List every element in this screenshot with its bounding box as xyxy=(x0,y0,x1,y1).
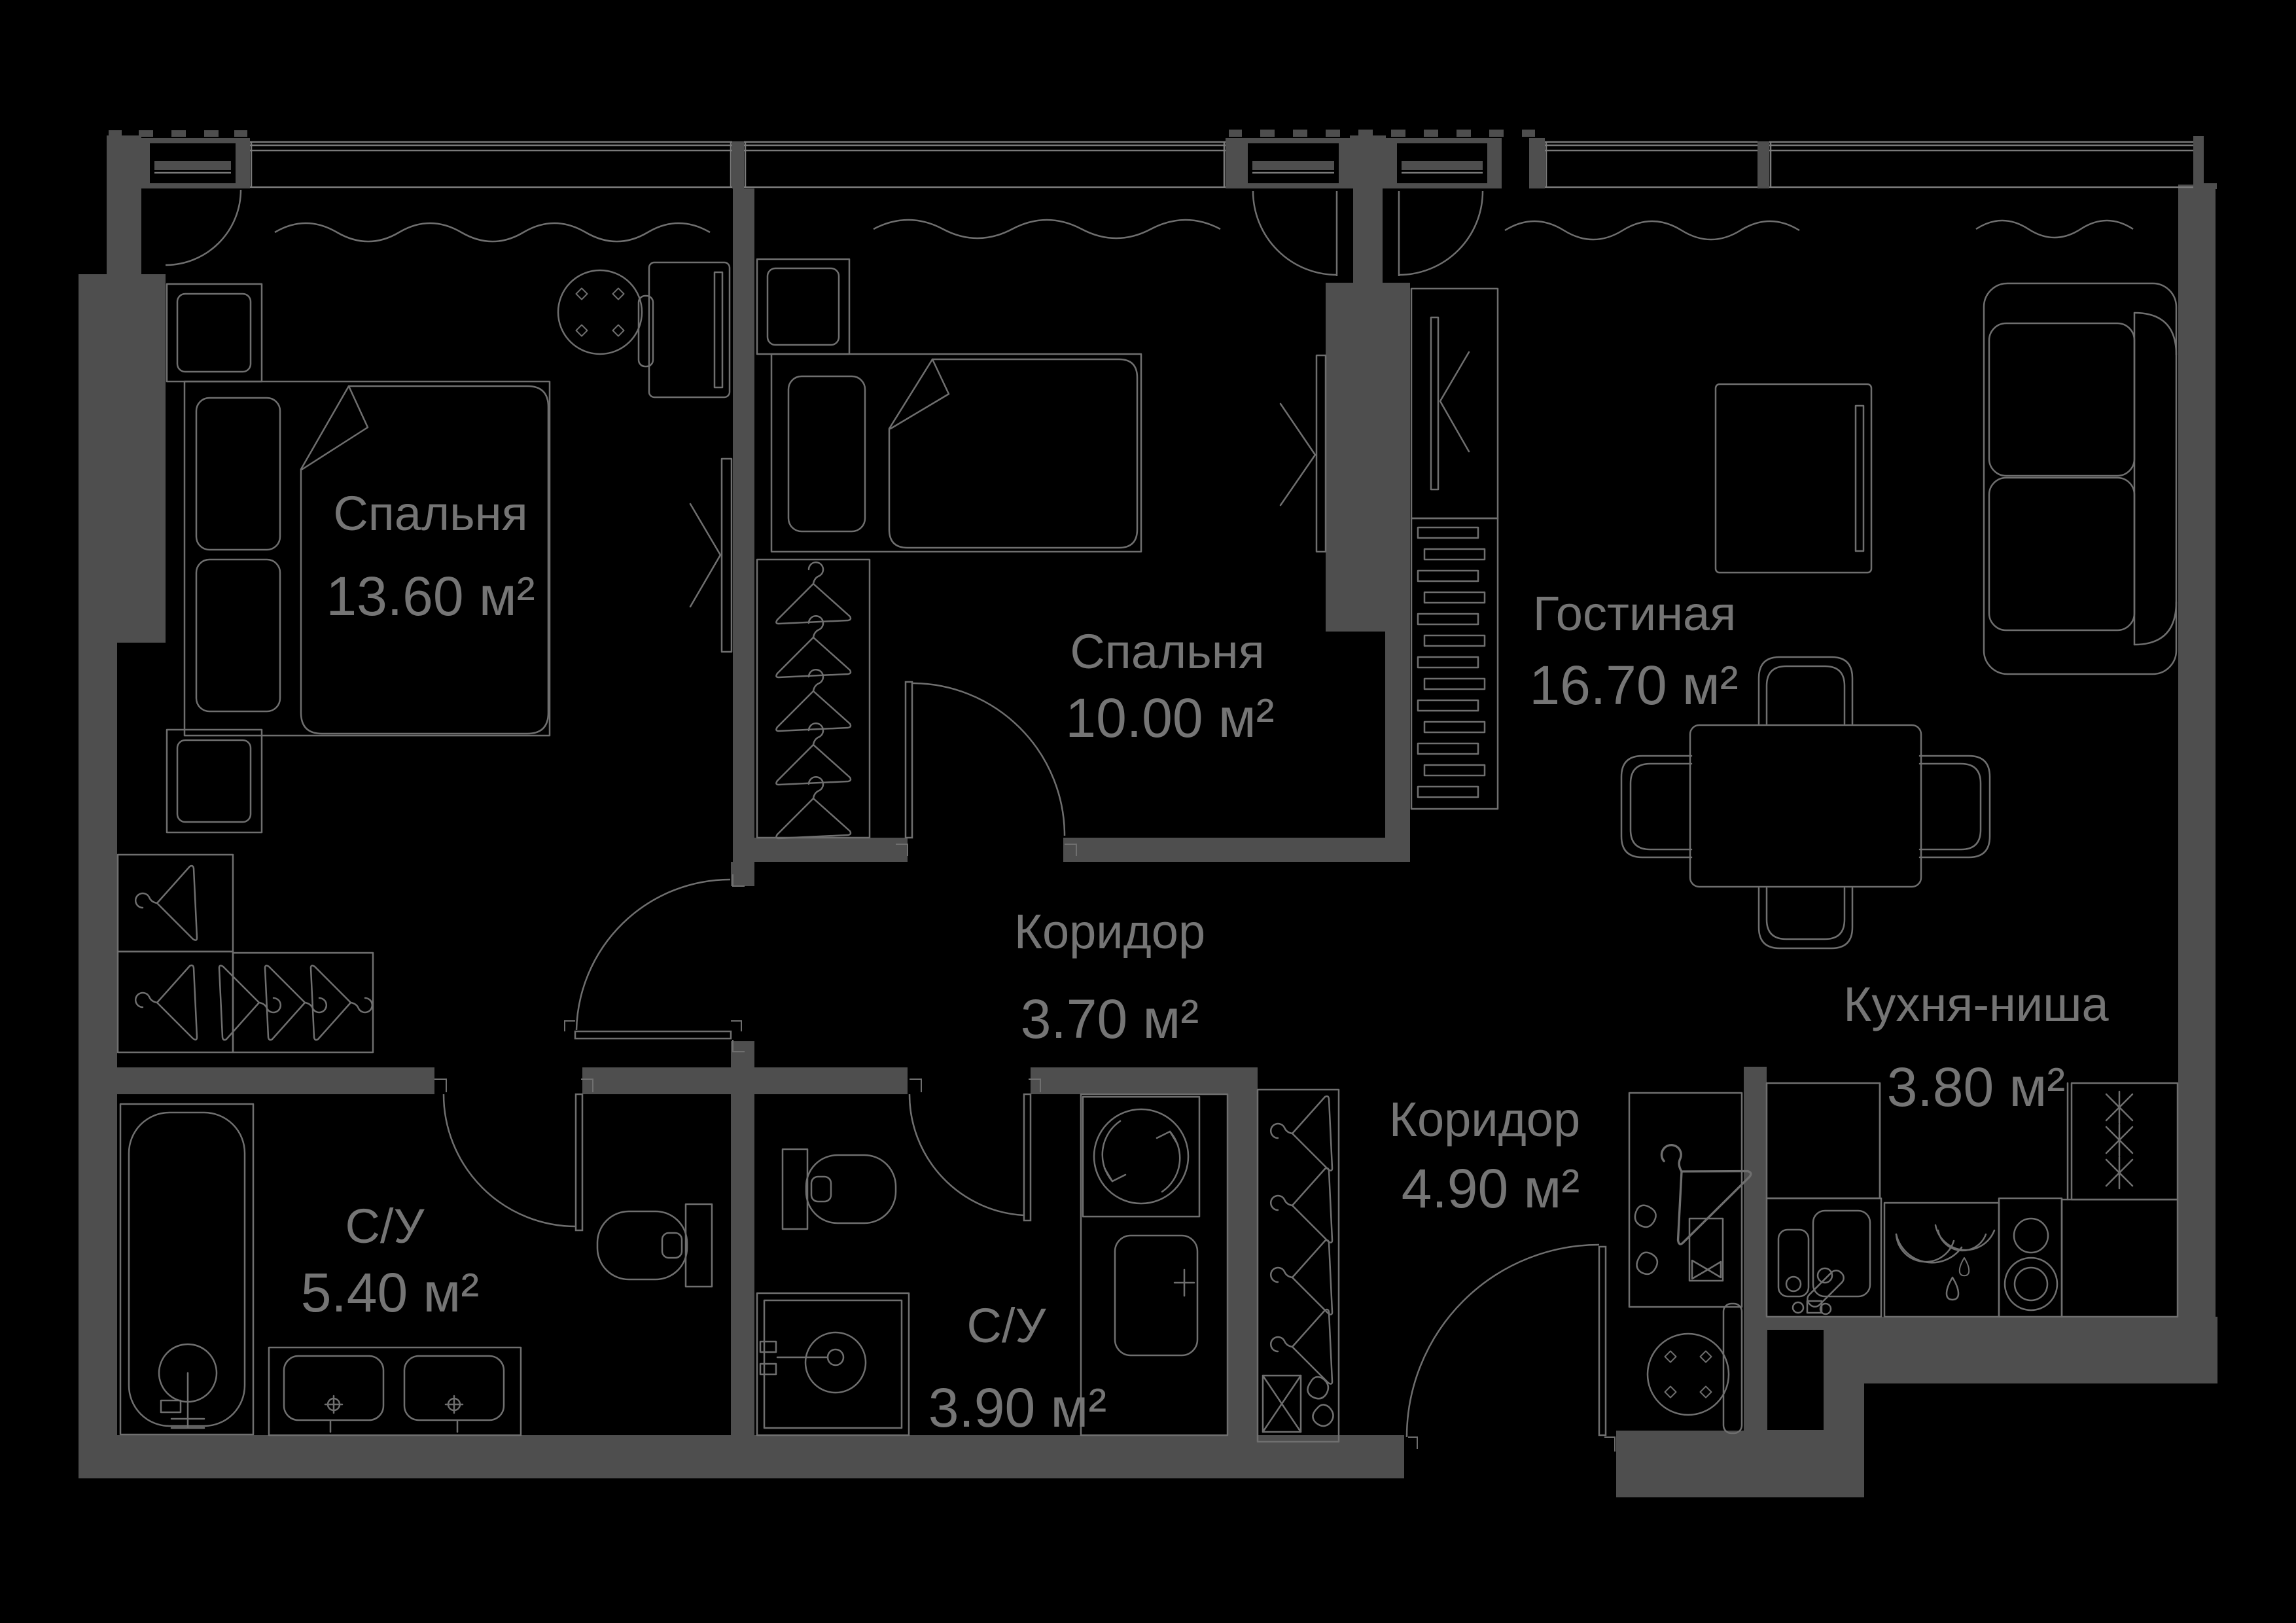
svg-text:5.40 м²: 5.40 м² xyxy=(301,1262,480,1323)
svg-text:Гостиная: Гостиная xyxy=(1533,586,1737,641)
svg-text:Спальня: Спальня xyxy=(333,486,527,541)
svg-text:13.60 м²: 13.60 м² xyxy=(326,565,535,627)
svg-text:Коридор: Коридор xyxy=(1389,1092,1580,1147)
svg-text:3.80 м²: 3.80 м² xyxy=(1887,1056,2066,1118)
svg-text:3.70 м²: 3.70 м² xyxy=(1021,988,1199,1050)
svg-text:4.90 м²: 4.90 м² xyxy=(1402,1158,1580,1219)
svg-text:16.70 м²: 16.70 м² xyxy=(1529,654,1738,716)
svg-text:Коридор: Коридор xyxy=(1014,904,1205,959)
svg-text:Спальня: Спальня xyxy=(1070,624,1264,679)
svg-text:С/У: С/У xyxy=(345,1199,425,1253)
svg-text:С/У: С/У xyxy=(966,1298,1046,1353)
svg-text:3.90 м²: 3.90 м² xyxy=(928,1377,1107,1438)
svg-text:10.00 м²: 10.00 м² xyxy=(1065,687,1274,749)
svg-text:Кухня-ниша: Кухня-ниша xyxy=(1843,977,2109,1031)
